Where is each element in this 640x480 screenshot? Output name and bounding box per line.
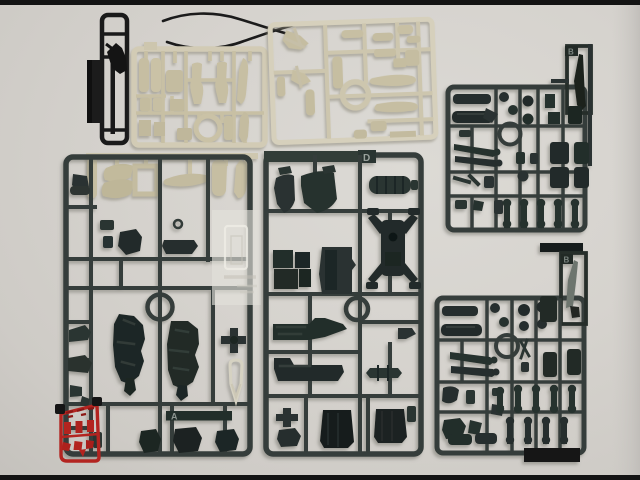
svg-text:A: A <box>171 412 178 422</box>
svg-text:B: B <box>568 48 574 57</box>
svg-text:D: D <box>363 153 370 164</box>
svg-text:B: B <box>564 256 570 265</box>
